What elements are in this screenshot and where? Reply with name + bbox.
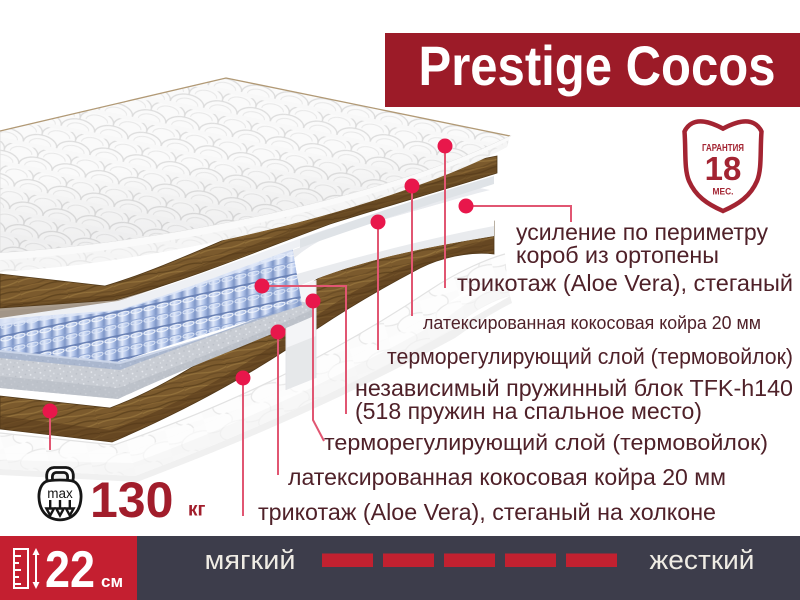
svg-text:латексированная кокосовая койр: латексированная кокосовая койра 20 мм [423, 313, 761, 333]
svg-text:терморегулирующий слой (термов: терморегулирующий слой (термовойлок) [324, 430, 768, 455]
svg-text:18: 18 [705, 150, 742, 187]
svg-text:МЕС.: МЕС. [713, 187, 734, 198]
svg-text:130: 130 [90, 472, 173, 528]
svg-text:латексированная кокосовая койр: латексированная кокосовая койра 20 мм [288, 464, 726, 490]
svg-text:терморегулирующий слой (термов: терморегулирующий слой (термовойлок) [387, 344, 793, 369]
svg-text:мягкий: мягкий [205, 545, 296, 575]
svg-text:короб из ортопены: короб из ортопены [516, 242, 719, 268]
svg-text:трикотаж (Aloe Vera), стеганый: трикотаж (Aloe Vera), стеганый на холкон… [258, 499, 716, 525]
svg-text:см: см [101, 572, 123, 591]
svg-text:22: 22 [45, 541, 95, 599]
svg-text:жесткий: жесткий [650, 545, 755, 575]
svg-text:max: max [47, 486, 73, 501]
svg-text:трикотаж (Aloe Vera), стеганый: трикотаж (Aloe Vera), стеганый [457, 270, 793, 296]
svg-text:(518 пружин на спальное место): (518 пружин на спальное место) [355, 398, 702, 424]
svg-text:кг: кг [188, 500, 206, 521]
svg-text:Prestige Cocos: Prestige Cocos [419, 34, 776, 97]
